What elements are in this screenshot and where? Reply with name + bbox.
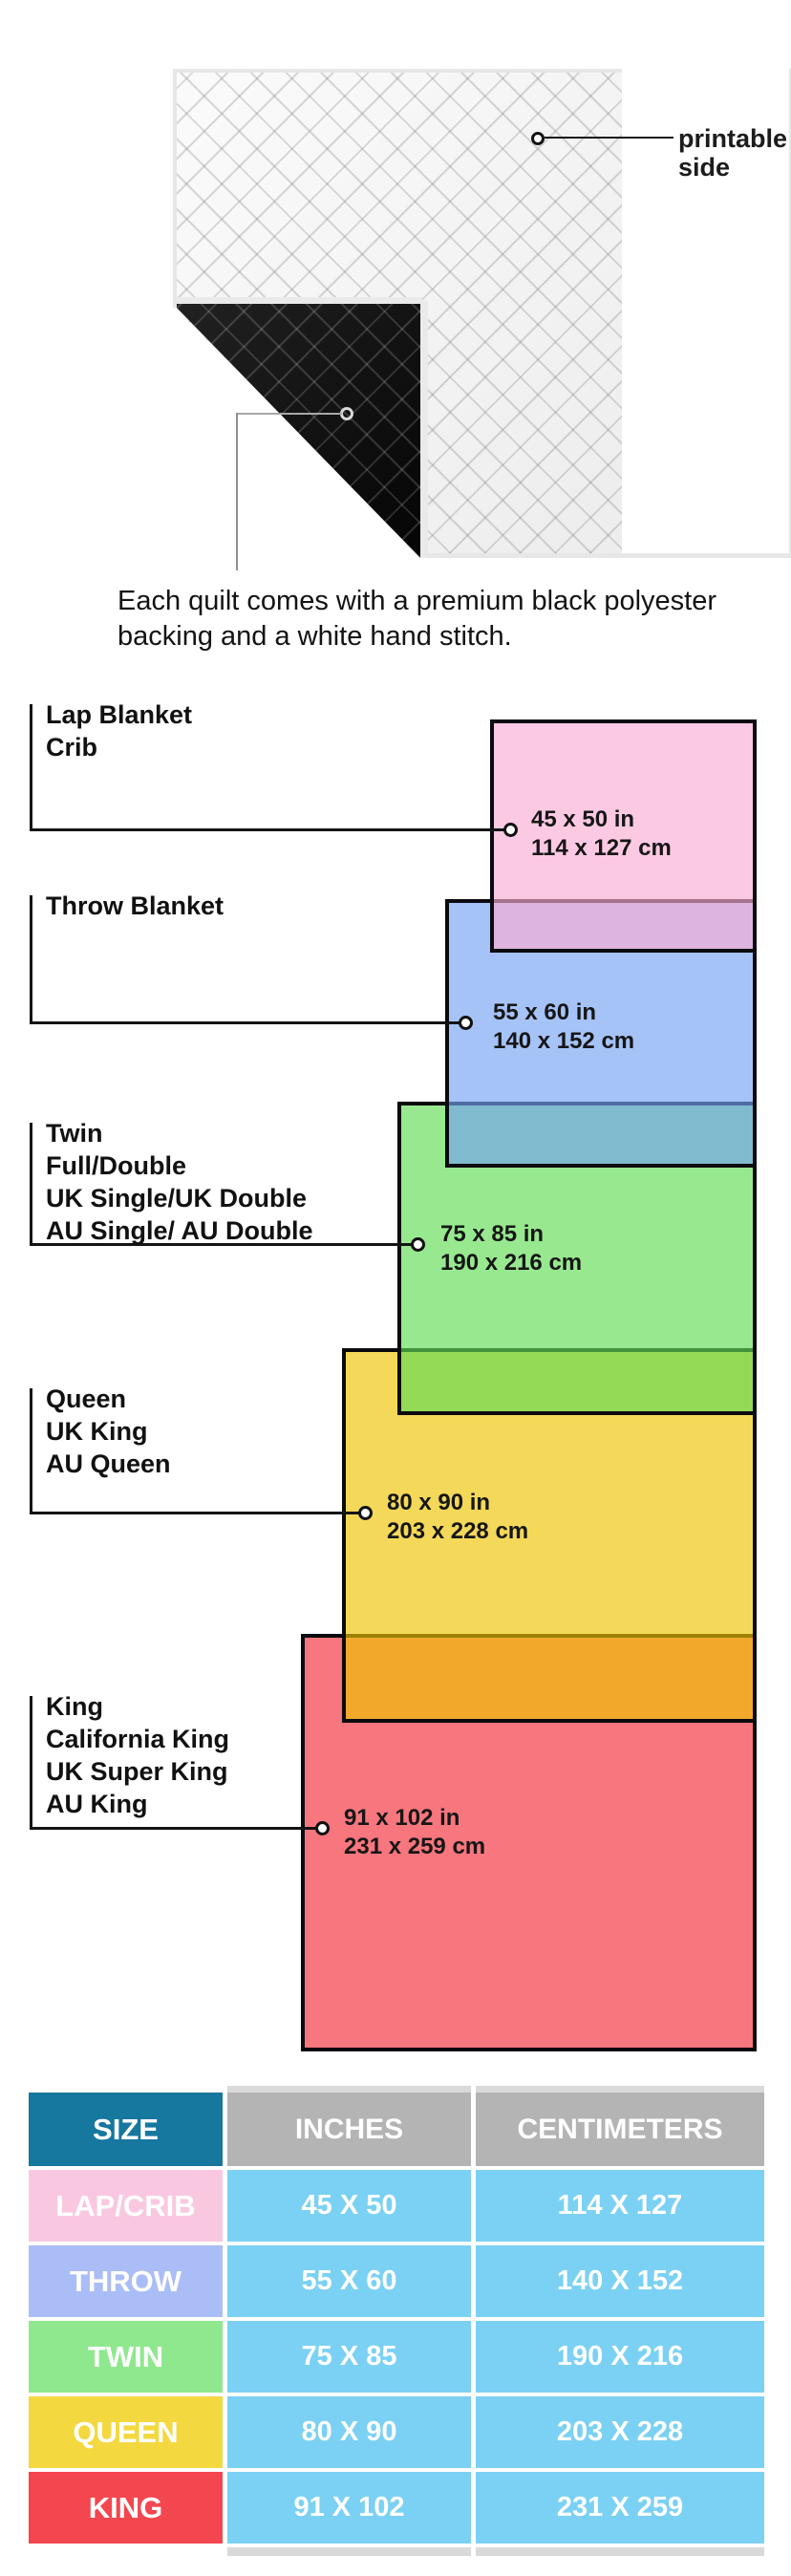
- table-row-queen-centimeters: 203 X 228: [476, 2396, 764, 2468]
- table-row-lap-crib-size: LAP/CRIB: [29, 2170, 223, 2242]
- printable-side-label-line1: printable: [678, 124, 787, 153]
- size-label-line: AU King: [46, 1788, 229, 1820]
- table-row-king-size: KING: [29, 2472, 223, 2544]
- table-shadow-strip: [227, 2547, 471, 2556]
- leader-dot: [503, 823, 518, 837]
- dimension-centimeters: 203 x 228 cm: [387, 1517, 528, 1546]
- table-row-queen-size: QUEEN: [29, 2396, 223, 2468]
- size-label-line: Lap Blanket: [46, 698, 192, 731]
- leader-vline: [30, 1696, 32, 1830]
- size-label-line: AU Queen: [46, 1448, 171, 1480]
- size-label-twin: Twin Full/Double UK Single/UK Double AU …: [46, 1117, 313, 1247]
- size-label-king: King California King UK Super King AU Ki…: [46, 1690, 229, 1820]
- table-row-twin-size: TWIN: [29, 2321, 223, 2393]
- size-label-queen: Queen UK King AU Queen: [46, 1383, 171, 1480]
- dimension-inches: 45 x 50 in: [531, 805, 672, 834]
- size-label-throw: Throw Blanket: [46, 890, 224, 922]
- size-label-line: Queen: [46, 1383, 171, 1415]
- leader-hline: [30, 1021, 460, 1024]
- black-backing-marker-dot: [340, 407, 353, 420]
- quilt-edge-binding: [426, 553, 791, 558]
- size-label-line: UK Single/UK Double: [46, 1182, 313, 1214]
- table-row-lap-crib-centimeters: 114 X 127: [476, 2170, 764, 2242]
- table-row-throw-size: THROW: [29, 2245, 223, 2317]
- quilt-photo: [173, 69, 622, 558]
- size-dimensions-king: 91 x 102 in 231 x 259 cm: [344, 1804, 485, 1861]
- quilt-edge-binding: [173, 69, 177, 308]
- dimension-centimeters: 231 x 259 cm: [344, 1833, 485, 1861]
- dimension-centimeters: 114 x 127 cm: [531, 834, 672, 863]
- table-shadow-strip: [476, 2547, 764, 2556]
- table-row-king-centimeters: 231 X 259: [476, 2472, 764, 2544]
- table-shadow-strip: [227, 2086, 471, 2093]
- table-row-twin-centimeters: 190 X 216: [476, 2321, 764, 2393]
- size-label-line: Throw Blanket: [46, 890, 224, 922]
- printable-side-label: printable side: [678, 124, 787, 182]
- dimension-centimeters: 190 x 216 cm: [440, 1249, 582, 1277]
- leader-hline: [30, 1512, 359, 1514]
- quilt-fold-binding-horizontal: [175, 297, 422, 304]
- quilt-caption-line2: backing and a white hand stitch.: [118, 619, 716, 655]
- size-label-line: UK King: [46, 1415, 171, 1448]
- printable-side-leader-line: [545, 137, 673, 139]
- leader-vline: [30, 704, 32, 831]
- size-dimensions-throw: 55 x 60 in 140 x 152 cm: [493, 998, 634, 1056]
- size-label-line: California King: [46, 1723, 229, 1755]
- size-label-line: Crib: [46, 731, 192, 763]
- table-row-lap-crib-inches: 45 X 50: [227, 2170, 471, 2242]
- dimension-inches: 80 x 90 in: [387, 1489, 528, 1517]
- size-label-line: King: [46, 1690, 229, 1723]
- dimension-centimeters: 140 x 152 cm: [493, 1027, 634, 1056]
- leader-dot: [358, 1506, 373, 1520]
- size-label-line: Full/Double: [46, 1149, 313, 1182]
- table-row-throw-centimeters: 140 X 152: [476, 2245, 764, 2317]
- printable-side-label-line2: side: [678, 153, 787, 182]
- black-backing-leader-line-horizontal: [237, 413, 342, 415]
- size-label-line: Twin: [46, 1117, 313, 1149]
- size-dimensions-twin: 75 x 85 in 190 x 216 cm: [440, 1220, 582, 1277]
- size-label-line: UK Super King: [46, 1755, 229, 1788]
- black-backing-leader-line-vertical: [236, 413, 238, 570]
- quilt-fold-binding-vertical: [420, 301, 428, 558]
- size-label-lap-crib: Lap Blanket Crib: [46, 698, 192, 763]
- dimension-inches: 55 x 60 in: [493, 998, 634, 1027]
- quilt-black-backing-fold: [173, 304, 420, 558]
- table-header-size: SIZE: [29, 2093, 223, 2166]
- quilt-edge-binding: [173, 69, 622, 73]
- table-header-centimeters: CENTIMETERS: [476, 2093, 764, 2166]
- leader-hline: [30, 828, 504, 831]
- size-dimensions-lap-crib: 45 x 50 in 114 x 127 cm: [531, 805, 672, 863]
- leader-hline: [30, 1827, 316, 1830]
- quilt-size-infographic: printable side Each quilt comes with a p…: [0, 0, 791, 2576]
- quilt-caption-line1: Each quilt comes with a premium black po…: [118, 584, 716, 619]
- leader-hline: [30, 1243, 412, 1246]
- table-row-twin-inches: 75 X 85: [227, 2321, 471, 2393]
- leader-vline: [30, 1123, 32, 1246]
- printable-side-marker-dot: [531, 132, 545, 145]
- leader-dot: [459, 1016, 473, 1030]
- leader-vline: [30, 1388, 32, 1514]
- table-header-inches: INCHES: [227, 2093, 471, 2166]
- table-row-king-inches: 91 X 102: [227, 2472, 471, 2544]
- size-dimensions-queen: 80 x 90 in 203 x 228 cm: [387, 1489, 528, 1546]
- table-row-throw-inches: 55 X 60: [227, 2245, 471, 2317]
- dimension-inches: 75 x 85 in: [440, 1220, 582, 1249]
- quilt-caption: Each quilt comes with a premium black po…: [118, 584, 716, 655]
- size-label-line: AU Single/ AU Double: [46, 1214, 313, 1247]
- leader-vline: [30, 895, 32, 1024]
- table-shadow-strip: [476, 2086, 764, 2093]
- dimension-inches: 91 x 102 in: [344, 1804, 485, 1833]
- leader-dot: [411, 1237, 425, 1252]
- table-row-queen-inches: 80 X 90: [227, 2396, 471, 2468]
- leader-dot: [315, 1821, 330, 1835]
